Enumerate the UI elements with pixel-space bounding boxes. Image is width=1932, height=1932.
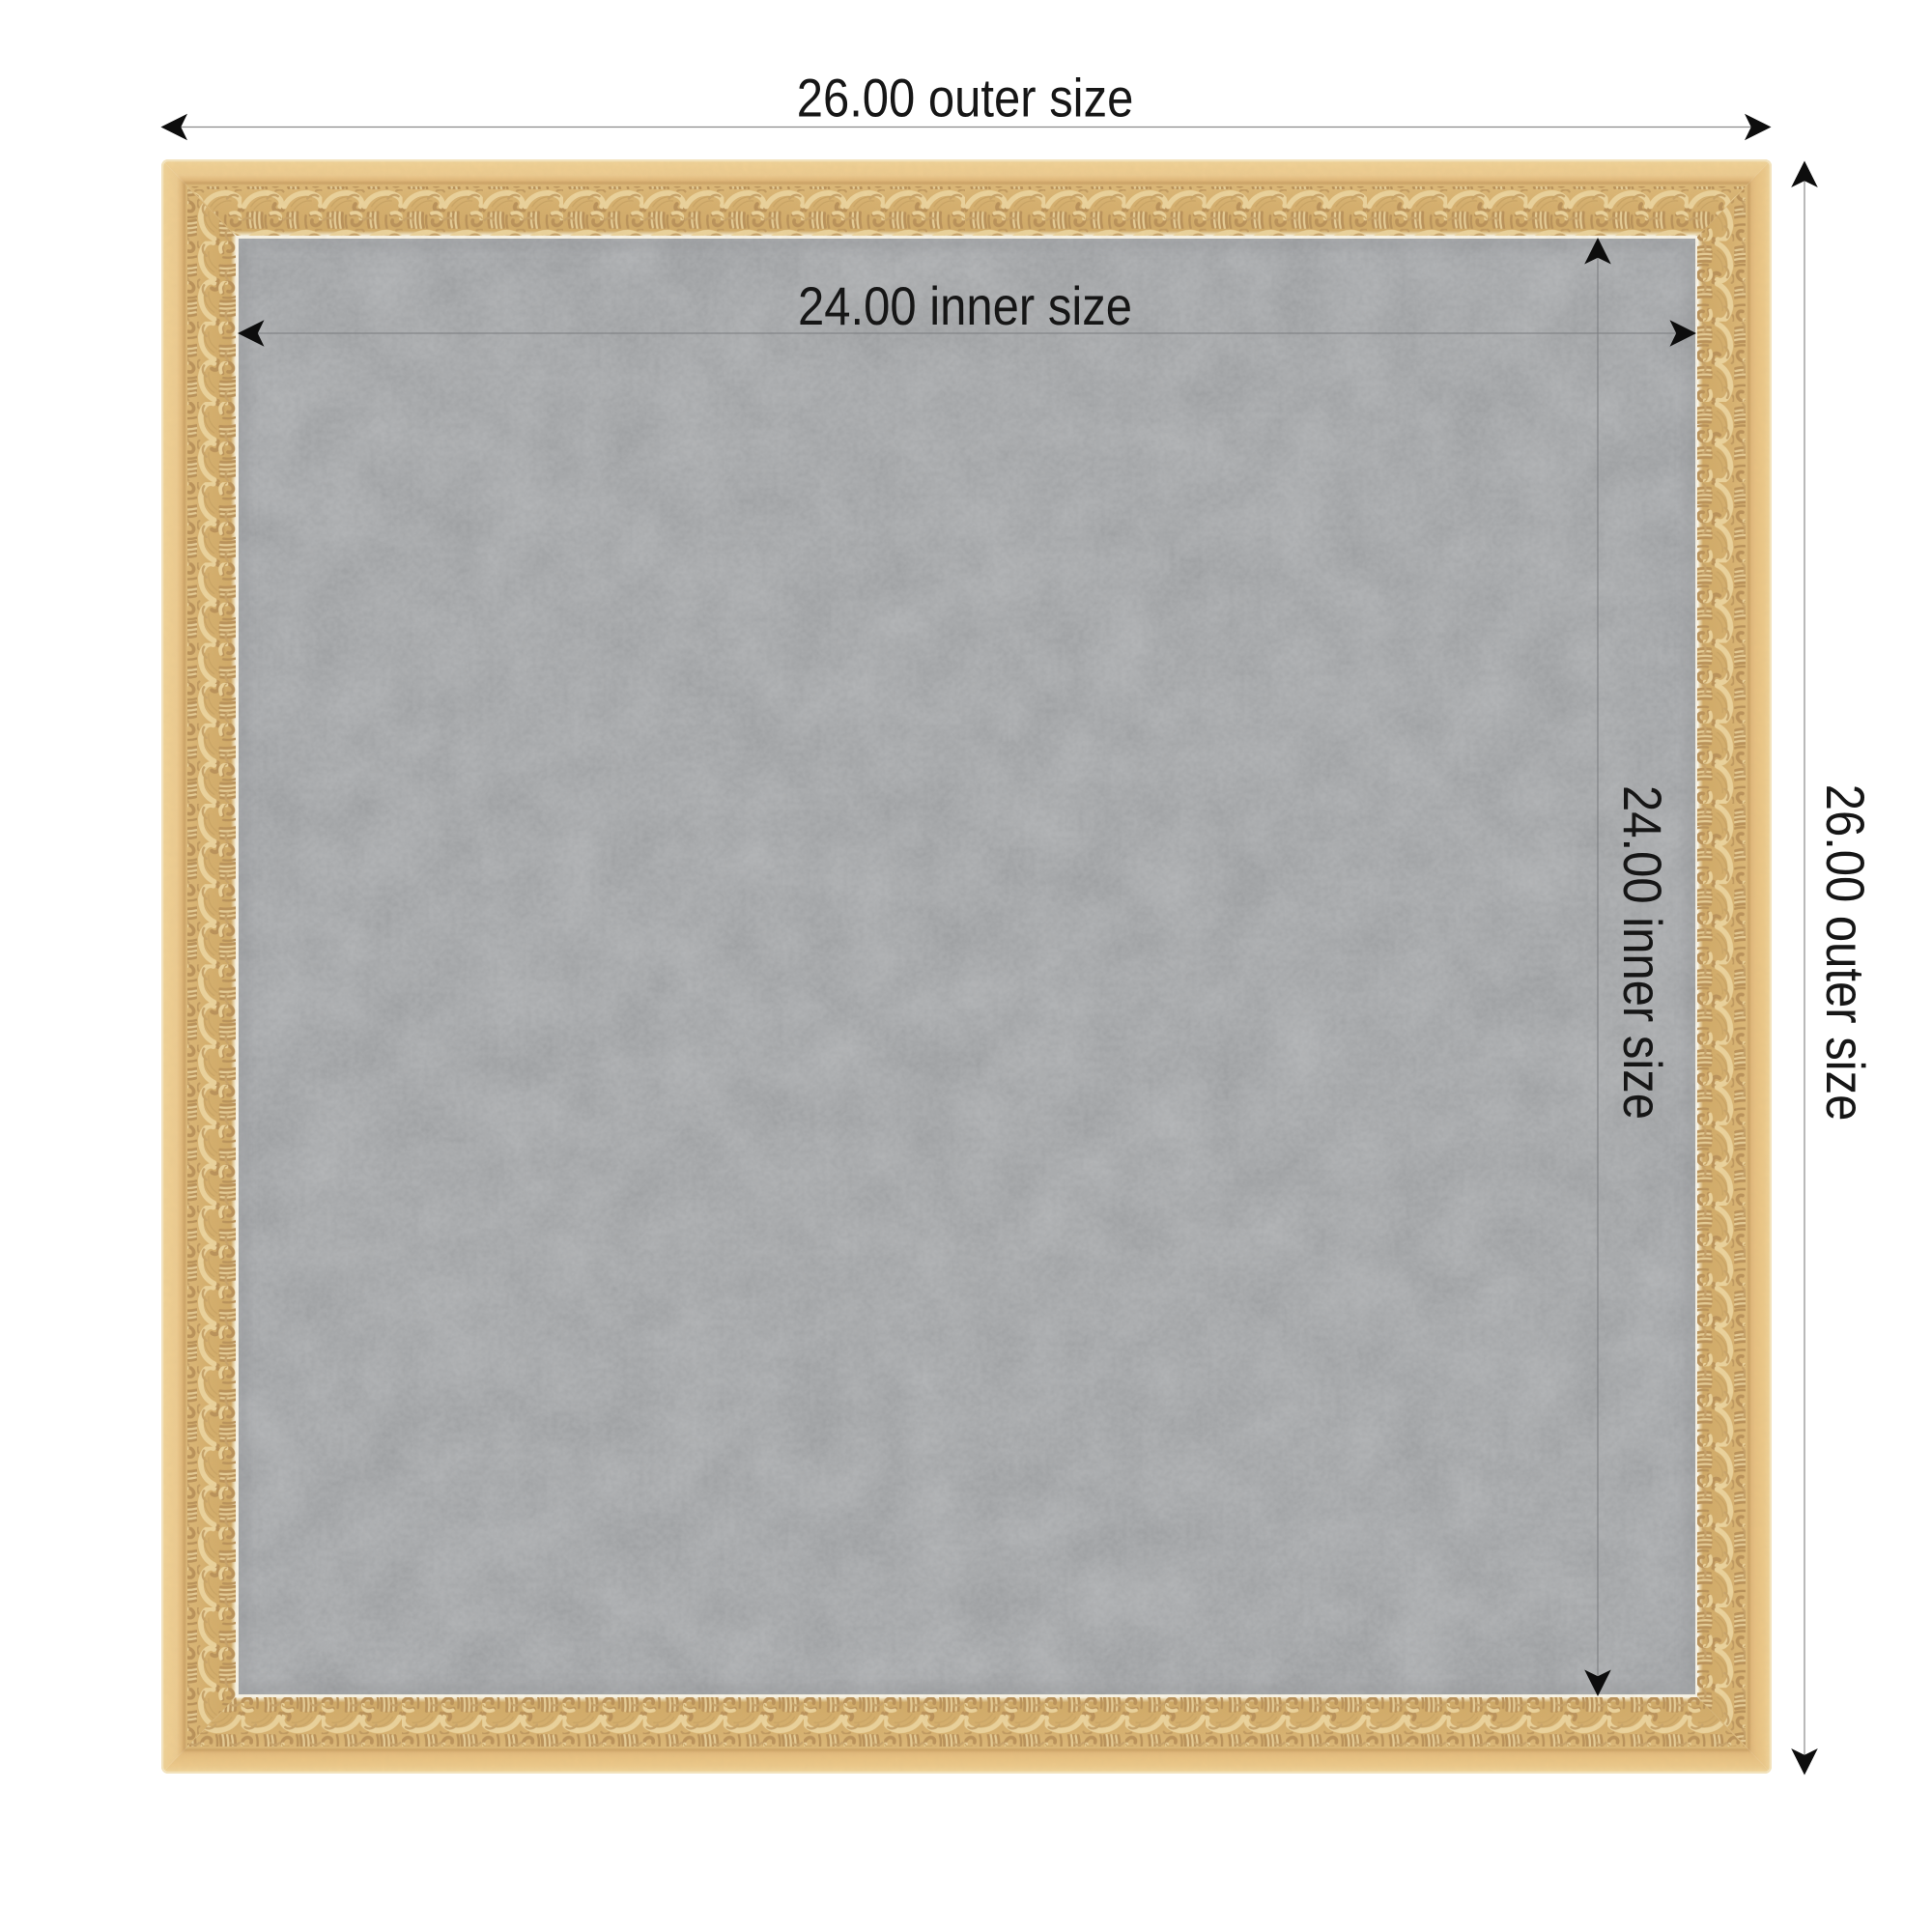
svg-text:26.00 outer size: 26.00 outer size <box>1814 784 1875 1122</box>
svg-text:26.00 outer size: 26.00 outer size <box>797 68 1134 128</box>
svg-text:24.00 inner size: 24.00 inner size <box>798 276 1132 337</box>
svg-text:24.00 inner size: 24.00 inner size <box>1611 785 1672 1120</box>
